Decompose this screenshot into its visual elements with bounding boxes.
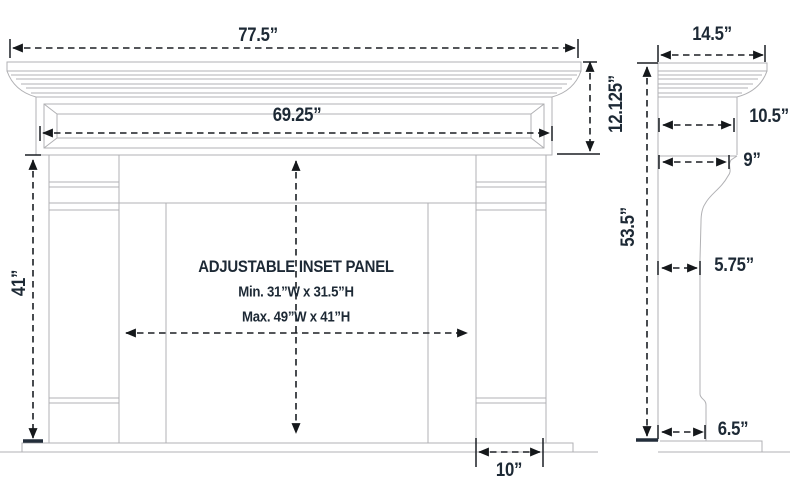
overall-width-label: 77.5” <box>238 25 278 47</box>
header-bottom-depth-label: 9” <box>743 150 760 172</box>
overall-height-label: 53.5” <box>618 207 640 247</box>
leg-height-label: 41” <box>9 270 31 296</box>
inset-panel-min: Min. 31”W x 31.5”H <box>238 284 354 301</box>
leg-depth-label: 5.75” <box>714 255 754 277</box>
side-plinth <box>660 441 762 452</box>
header-depth-label: 10.5” <box>749 106 789 128</box>
line-art <box>0 0 800 500</box>
diagram-canvas: 77.5” 69.25” 12.125” 41” 10” ADJUSTABLE … <box>0 0 800 500</box>
side-shelf-board <box>658 63 767 71</box>
dimension-ticks-heavy <box>23 440 658 441</box>
header-height-label: 12.125” <box>606 75 628 133</box>
header-panel-width-label: 69.25” <box>273 105 322 127</box>
side-leg-ogee-profile <box>700 156 737 441</box>
dimension-lines <box>13 48 763 452</box>
inset-panel-title: ADJUSTABLE INSET PANEL <box>198 257 394 277</box>
front-shelf-board <box>7 62 581 71</box>
leg-bottom-width-label: 10” <box>496 460 522 482</box>
dimension-ticks <box>10 39 765 467</box>
inset-panel-max: Max. 49”W x 41”H <box>242 309 350 326</box>
foot-depth-label: 6.5” <box>718 419 749 441</box>
shelf-depth-label: 14.5” <box>692 24 732 46</box>
front-plinth <box>22 443 573 452</box>
